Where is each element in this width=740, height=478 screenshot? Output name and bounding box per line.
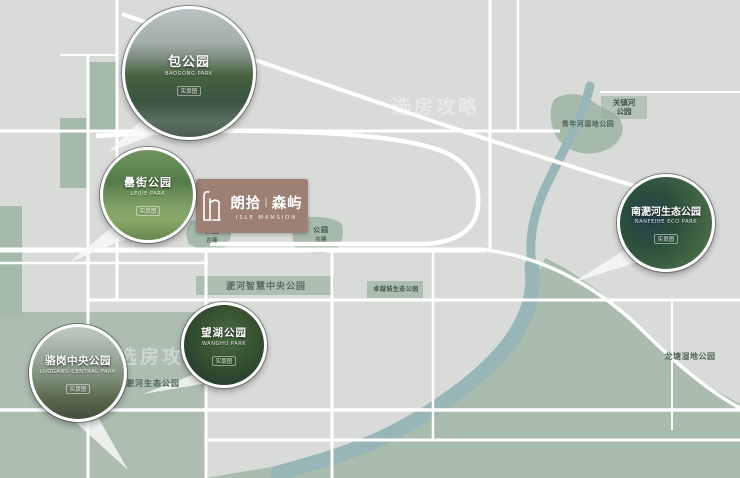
park-name: 包公园 bbox=[168, 51, 210, 70]
project-logo: 朗拾 | 森屿 ISLE MANSION bbox=[196, 179, 308, 233]
label-qingnianhe-wetland-park: 青年河湿地公园 bbox=[548, 120, 628, 129]
callout-luogang-central-park: 骆岗中央公园 LUOGANG CENTRAL PARK 实景图 bbox=[29, 324, 127, 422]
label-guanzhenhe-park: 关镇河 公园 bbox=[601, 96, 647, 119]
green-space-shapes bbox=[0, 62, 740, 478]
callout-wanghu-park: 望湖公园 WANGHU PARK 实景图 bbox=[181, 302, 267, 388]
label-line: 关镇河 bbox=[613, 98, 636, 107]
photo-tag: 实景图 bbox=[136, 206, 161, 216]
logo-divider: | bbox=[264, 197, 268, 208]
label-feihe-smart-central-park: 淝河智慧中央公园 bbox=[200, 282, 332, 293]
park-name: 望湖公园 bbox=[201, 325, 247, 340]
photo-tag: 实景图 bbox=[212, 356, 237, 366]
logo-name-right: 森屿 bbox=[272, 192, 303, 213]
green-patch bbox=[60, 118, 88, 188]
callout-nanfeihe-eco-park: 南淝河生态公园 NANFEIHE ECO PARK 实景图 bbox=[617, 174, 715, 272]
logo-subtitle: ISLE MANSION bbox=[236, 215, 297, 221]
green-patch bbox=[89, 62, 116, 130]
logo-name-left: 朗拾 bbox=[230, 192, 261, 213]
label-line: 公园 bbox=[617, 107, 632, 116]
green-patch bbox=[0, 206, 22, 316]
park-name-en: WANGHU PARK bbox=[202, 341, 246, 347]
park-name-en: LEIJIE PARK bbox=[131, 191, 166, 197]
logo-text: 朗拾 | 森屿 ISLE MANSION bbox=[230, 192, 302, 221]
label-zhuoyuecheng-eco-park: 卓越城生态公园 bbox=[366, 286, 426, 294]
patch-label-status: 在建 bbox=[302, 235, 340, 243]
photo-tag: 实景图 bbox=[66, 384, 91, 394]
location-map: 选房攻略 选房攻略 淝河智慧中央公园 卓越城生态公园 淝河生态公园 龙塘湿地公园… bbox=[0, 0, 740, 478]
logo-monogram-icon bbox=[201, 189, 223, 223]
park-name: 罍街公园 bbox=[124, 174, 172, 190]
patch-label-status: 在建 bbox=[194, 236, 230, 244]
park-name: 南淝河生态公园 bbox=[631, 203, 701, 218]
park-name-en: BAOGONG PARK bbox=[165, 71, 213, 77]
park-name-en: LUOGANG CENTRAL PARK bbox=[40, 369, 116, 375]
park-name-en: NANFEIHE ECO PARK bbox=[635, 219, 697, 225]
photo-tag: 实景图 bbox=[177, 86, 202, 96]
photo-tag: 实景图 bbox=[654, 234, 679, 244]
callout-leijie-park: 罍街公园 LEIJIE PARK 实景图 bbox=[100, 147, 196, 243]
park-name: 骆岗中央公园 bbox=[45, 353, 111, 368]
label-longtang-wetland-park: 龙塘湿地公园 bbox=[652, 352, 728, 362]
callout-baogongyuan-park: 包公园 BAOGONG PARK 实景图 bbox=[122, 6, 256, 140]
